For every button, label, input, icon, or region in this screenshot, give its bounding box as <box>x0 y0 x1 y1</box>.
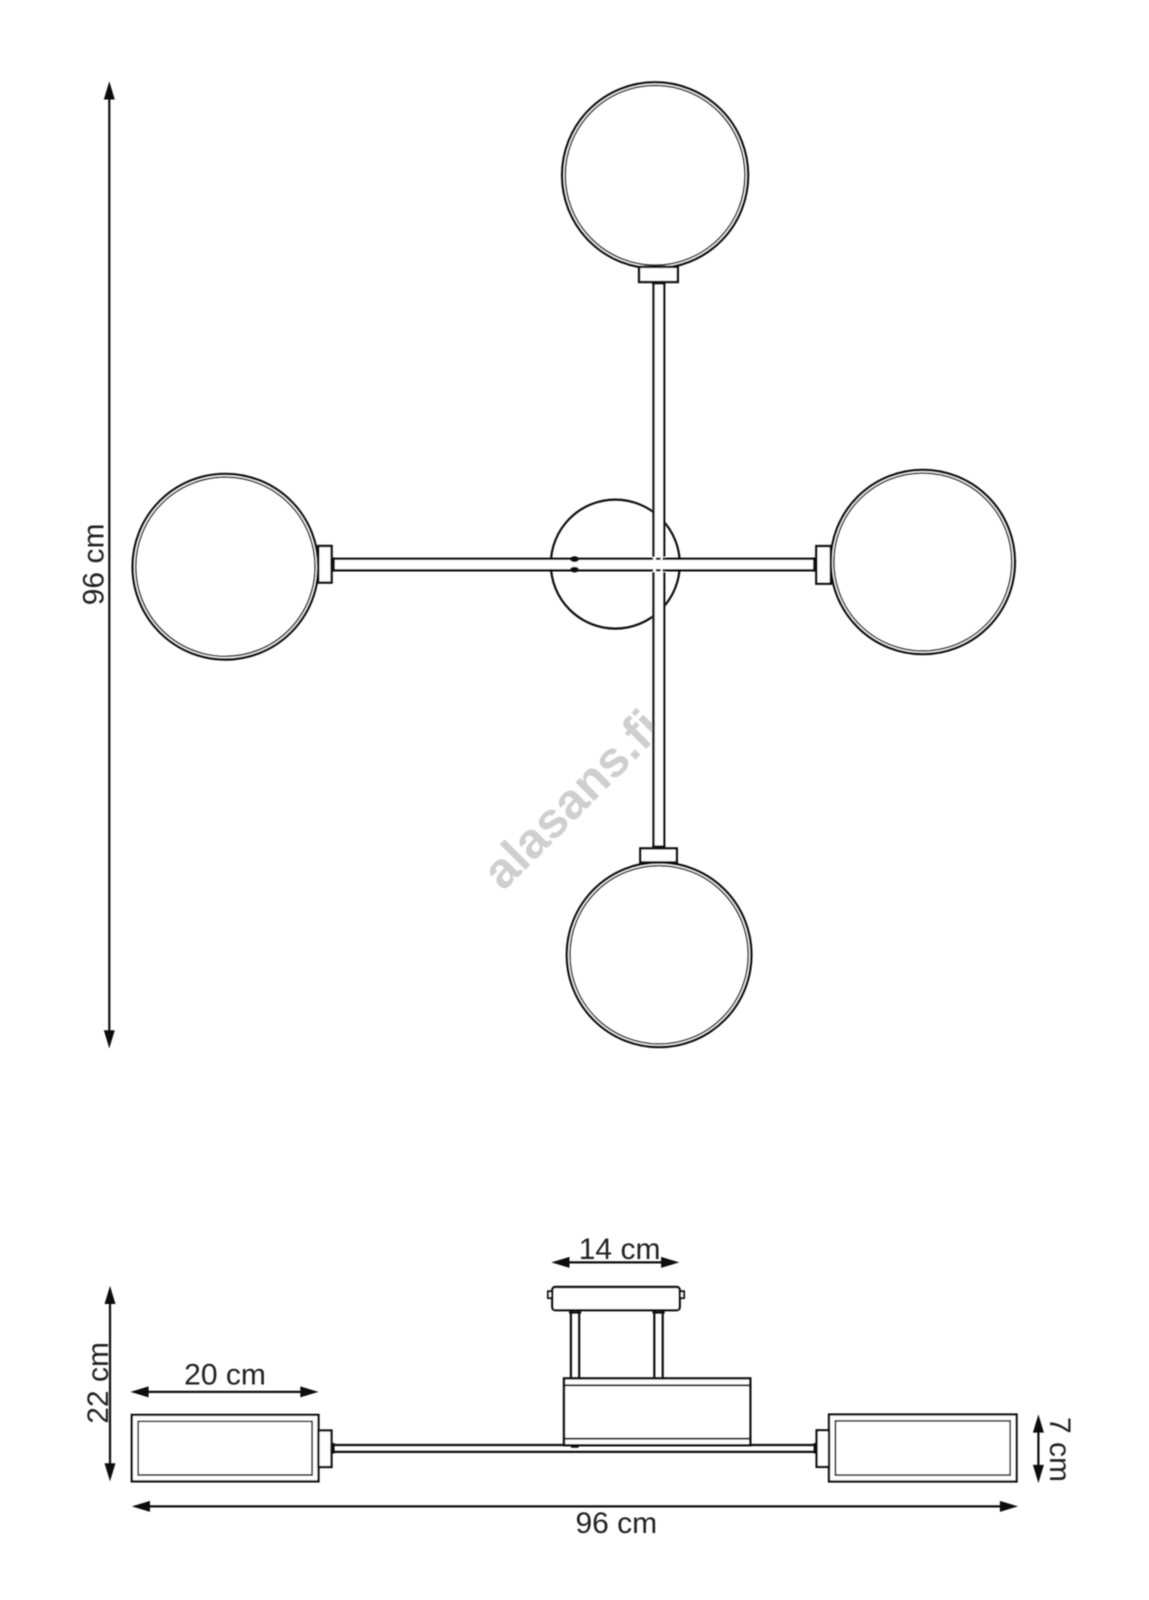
svg-text:96 cm: 96 cm <box>575 1507 657 1540</box>
svg-text:22 cm: 22 cm <box>82 1342 115 1424</box>
svg-text:7 cm: 7 cm <box>1043 1417 1076 1482</box>
svg-text:14 cm: 14 cm <box>579 1233 661 1266</box>
svg-text:20 cm: 20 cm <box>184 1359 266 1392</box>
svg-text:96 cm: 96 cm <box>78 524 111 606</box>
